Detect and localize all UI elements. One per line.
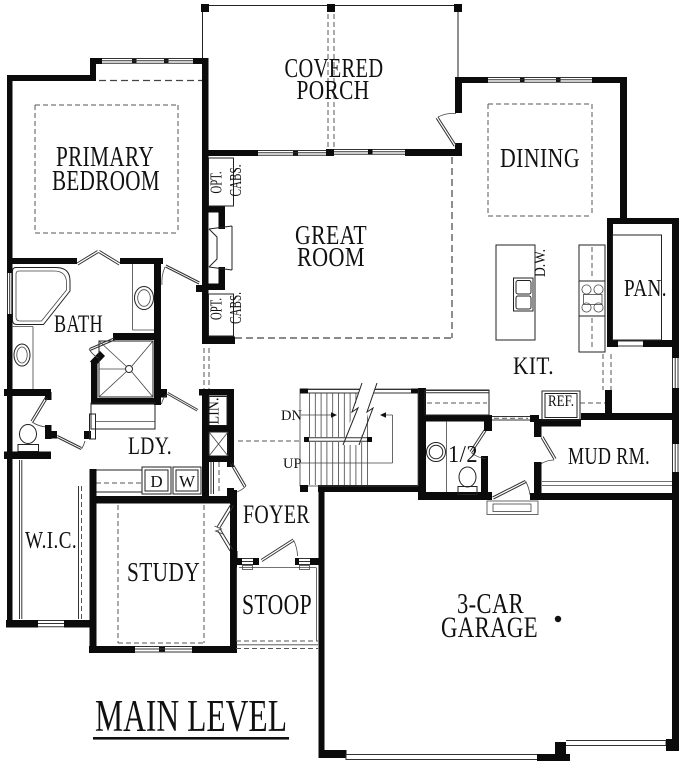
svg-text:REF.: REF. [548, 393, 574, 410]
svg-text:STUDY: STUDY [127, 557, 200, 587]
svg-text:CABS.: CABS. [226, 292, 245, 324]
svg-text:LIN.: LIN. [204, 398, 223, 425]
svg-text:1/2: 1/2 [448, 442, 478, 468]
svg-text:GARAGE: GARAGE [441, 611, 538, 644]
svg-text:MAIN LEVEL: MAIN LEVEL [95, 691, 287, 741]
svg-text:ROOM: ROOM [297, 242, 365, 272]
svg-text:D.W.: D.W. [532, 249, 549, 277]
svg-text:DINING: DINING [500, 143, 580, 173]
svg-text:PAN.: PAN. [624, 276, 667, 302]
svg-text:CABS.: CABS. [226, 165, 245, 197]
svg-text:PORCH: PORCH [297, 75, 370, 105]
svg-text:LDY.: LDY. [128, 433, 172, 460]
svg-text:BEDROOM: BEDROOM [52, 166, 160, 197]
svg-text:STOOP: STOOP [242, 590, 312, 621]
svg-text:DN: DN [281, 408, 302, 424]
svg-text:FOYER: FOYER [243, 500, 310, 529]
svg-text:BATH: BATH [54, 311, 103, 338]
svg-text:KIT.: KIT. [513, 353, 554, 380]
svg-text:W.I.C.: W.I.C. [25, 528, 77, 554]
svg-text:MUD RM.: MUD RM. [568, 444, 650, 470]
svg-text:W: W [179, 472, 196, 491]
svg-text:OPT.: OPT. [207, 298, 226, 320]
svg-text:OPT.: OPT. [207, 172, 226, 194]
svg-text:D: D [150, 472, 162, 491]
svg-text:UP: UP [283, 456, 302, 472]
